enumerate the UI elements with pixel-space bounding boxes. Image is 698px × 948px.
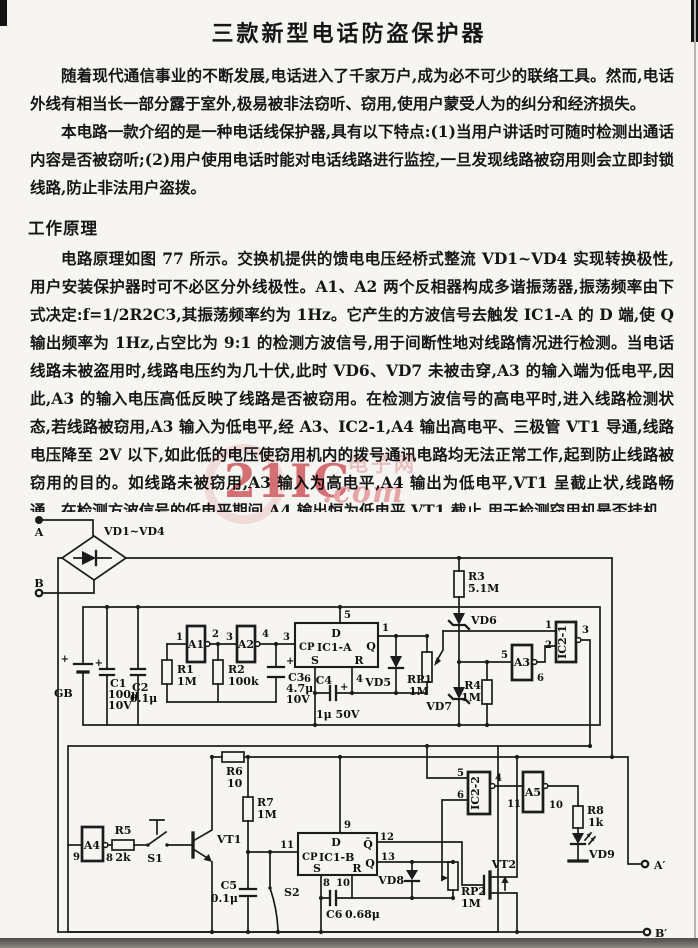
- section-heading: 工作原理: [28, 215, 698, 239]
- circuit-label-vd9: VD9: [588, 848, 615, 861]
- circuit-label-c3-plus: +: [286, 656, 294, 667]
- circuit-label-a5-pin11: 11: [507, 799, 521, 810]
- capacitor-c4-symbol: [330, 686, 336, 700]
- circuit-label-ic21-pin3: 3: [582, 625, 589, 636]
- circuit-label-ic22-pin6: 6: [457, 790, 464, 801]
- circuit-label-ic1b-qbar: Q̄: [363, 837, 373, 851]
- circuit-label-vd8: VD8: [377, 874, 404, 887]
- circuit-label-c1-plus: +: [95, 658, 103, 669]
- circuit-label-ic1a-pin3: 3: [283, 632, 290, 643]
- circuit-label-c5: C5: [221, 879, 237, 892]
- circuit-label-a3: A3: [513, 656, 530, 669]
- circuit-label-c4-plus: +: [340, 682, 348, 693]
- circuit-label-ic1b-q: Q: [365, 857, 375, 870]
- circuit-label-r3-value: 5.1M: [468, 582, 499, 595]
- resistor-r5-symbol: [112, 840, 148, 850]
- circuit-label-terminal-a-prime: A′: [653, 859, 666, 872]
- intro-paragraph-2: 本电路一款介绍的是一种电话线保护器,具有以下特点:(1)当用户讲话时可随时检测出…: [30, 118, 674, 202]
- scanned-page: 三款新型电话防盗保护器 随着现代通信事业的不断发展,电话进入了千家万户,成为必不…: [0, 0, 698, 948]
- circuit-label-c6: C6: [326, 908, 343, 921]
- ic1b-flipflop-section: [240, 757, 484, 932]
- intro-paragraph-1: 随着现代通信事业的不断发展,电话进入了千家万户,成为必不可少的联络工具。然而,电…: [30, 62, 674, 118]
- circuit-label-r1-value: 1M: [177, 675, 197, 688]
- page-title: 三款新型电话防盗保护器: [0, 16, 698, 48]
- circuit-label-r5: R5: [115, 824, 132, 837]
- circuit-label-vt1: VT1: [216, 833, 241, 846]
- circuit-label-ic1b-pin12: 12: [380, 832, 394, 843]
- circuit-label-a3-pin6: 6: [537, 673, 544, 684]
- transistor-vt1-symbol: [193, 757, 212, 932]
- circuit-label-ic1b: IC1-B: [319, 851, 354, 864]
- input-terminal-b: [36, 580, 94, 596]
- circuit-label-a4-pin8: 8: [106, 853, 113, 864]
- circuit-label-a4-pin9: 9: [73, 852, 80, 863]
- circuit-label-ic1a-pin1: 1: [382, 623, 389, 634]
- circuit-label-battery: GB: [54, 687, 73, 700]
- circuit-label-a5: A5: [524, 786, 541, 799]
- circuit-label-c3-voltage: 10V: [286, 693, 310, 706]
- principle-text: 电路原理如图 77 所示。交换机提供的馈电电压经桥式整流 VD1~VD4 实现转…: [0, 245, 698, 512]
- circuit-label-ic1a-pin4: 4: [356, 674, 363, 685]
- circuit-label-ic1a-q: Q: [366, 640, 376, 653]
- circuit-label-r2-value: 100k: [228, 675, 259, 688]
- circuit-label-ic1a: IC1-A: [317, 641, 352, 654]
- circuit-label-ic1a-cp: CP: [299, 642, 315, 653]
- circuit-label-ic1a-pin5: 5: [344, 610, 351, 621]
- resistor-r7-symbol: [243, 757, 253, 852]
- resistor-r1-symbol: [162, 644, 172, 702]
- circuit-label-ic1a-pin6: 6: [304, 674, 311, 685]
- circuit-label-terminal-a: A: [34, 526, 44, 539]
- circuit-label-a4: A4: [83, 839, 101, 852]
- capacitor-c3-symbol: [268, 644, 284, 702]
- circuit-label-ic21-pin1: 1: [545, 620, 552, 631]
- resistor-r2-symbol: [213, 644, 223, 702]
- circuit-label-rp1-value: 1M: [409, 685, 429, 698]
- circuit-label-vd5: VD5: [364, 676, 391, 689]
- circuit-label-c2-value: 0.1μ: [130, 692, 157, 705]
- output-section: [468, 757, 595, 932]
- circuit-label-r6-value: 10: [227, 777, 243, 790]
- capacitor-c2-symbol: [131, 607, 145, 725]
- circuit-label-r4-value: 1M: [461, 691, 481, 704]
- circuit-label-a3-pin5: 5: [501, 650, 508, 661]
- diode-vd5-symbol: [389, 636, 403, 693]
- output-terminal-a-prime: [642, 861, 648, 867]
- capacitor-c6-symbol: [330, 891, 336, 905]
- circuit-label-r5-value: 2k: [115, 851, 131, 864]
- document-text: 三款新型电话防盗保护器 随着现代通信事业的不断发展,电话进入了千家万户,成为必不…: [0, 0, 698, 512]
- circuit-labels: ABVD1~VD4+GB+C1100μ10VC20.1μA112A234R11M…: [34, 525, 668, 940]
- switch-s2-symbol: [268, 852, 278, 930]
- circuit-label-ic1b-pin10: 10: [336, 878, 350, 889]
- circuit-label-s1: S1: [147, 852, 163, 865]
- circuit-label-terminal-b: B: [34, 577, 43, 590]
- circuit-label-ic1b-s: S: [313, 862, 321, 875]
- circuit-diagram-figure-77: ABVD1~VD4+GB+C1100μ10VC20.1μA112A234R11M…: [0, 510, 698, 948]
- circuit-label-battery-plus: +: [61, 654, 69, 665]
- circuit-label-ic1b-pin11: 11: [280, 840, 294, 851]
- circuit-label-ic1a-r: R: [354, 654, 364, 667]
- principle-paragraph: 电路原理如图 77 所示。交换机提供的馈电电压经桥式整流 VD1~VD4 实现转…: [30, 245, 674, 512]
- circuit-label-r7-value: 1M: [257, 808, 277, 821]
- circuit-label-ic2-1: IC2-1: [556, 625, 569, 659]
- diode-vd8-symbol: [405, 862, 419, 898]
- potentiometer-rp2-symbol: [441, 800, 468, 898]
- circuit-label-a2-pin4: 4: [262, 629, 269, 640]
- circuit-label-vd6: VD6: [470, 614, 497, 627]
- capacitor-c5-symbol: [240, 852, 256, 932]
- body-text: 随着现代通信事业的不断发展,电话进入了千家万户,成为必不可少的联络工具。然而,电…: [0, 48, 698, 202]
- circuit-label-ic1b-pin8: 8: [323, 878, 330, 889]
- circuit-label-bridge: VD1~VD4: [103, 525, 165, 538]
- scan-edge-line: [694, 0, 696, 948]
- resistor-r4-symbol: [482, 662, 492, 725]
- circuit-label-ic22-pin4: 4: [495, 773, 502, 784]
- circuit-label-ic1b-r: R: [352, 862, 362, 875]
- circuit-label-vt2: VT2: [491, 858, 516, 871]
- circuit-label-ic2-2: IC2-2: [469, 776, 482, 810]
- circuit-label-a1-pin1: 1: [176, 632, 183, 643]
- circuit-label-ic1a-s: S: [311, 654, 319, 667]
- circuit-label-s2: S2: [284, 886, 300, 899]
- switch-s1-symbol: [146, 820, 193, 847]
- circuit-label-ic1b-pin9: 9: [344, 820, 351, 831]
- battery-gb-symbol: [74, 664, 92, 672]
- circuit-label-r8-value: 1k: [588, 816, 604, 829]
- circuit-label-ic22-pin5: 5: [457, 768, 464, 779]
- resistor-r6-symbol: [212, 752, 612, 762]
- circuit-label-a1-pin2: 2: [212, 629, 219, 640]
- circuit-label-ic21-pin2: 2: [545, 640, 552, 651]
- circuit-label-vd7: VD7: [425, 700, 452, 713]
- scan-artifact-top-left: [0, 0, 7, 26]
- circuit-label-a2: A2: [237, 638, 254, 651]
- scan-bottom-band: [0, 938, 698, 948]
- circuit-label-a5-pin10: 10: [549, 800, 563, 811]
- circuit-label-ic1b-pin13: 13: [381, 852, 395, 863]
- junction-dots: [105, 556, 614, 934]
- input-terminal-a: [35, 516, 93, 536]
- bridge-rectifier-vd1-vd4: [62, 536, 126, 580]
- circuit-label-c4-value: 1μ 50V: [316, 708, 360, 721]
- circuit-label-c1-voltage: 10V: [108, 699, 132, 712]
- circuit-label-ic1a-d: D: [331, 627, 341, 640]
- circuit-label-c4: C4: [316, 674, 333, 687]
- resistor-r3-symbol: [454, 558, 464, 613]
- circuit-label-a1: A1: [187, 638, 204, 651]
- output-terminal-b-prime: [644, 929, 650, 935]
- circuit-label-a2-pin3: 3: [226, 632, 233, 643]
- resistor-r8-symbol: [573, 806, 583, 833]
- circuit-label-rp2-value: 1M: [461, 897, 481, 910]
- circuit-label-c6-value: 0.68μ: [345, 908, 380, 921]
- circuit-label-ic1b-d: D: [331, 836, 341, 849]
- circuit-label-c5-value: 0.1μ: [211, 892, 238, 905]
